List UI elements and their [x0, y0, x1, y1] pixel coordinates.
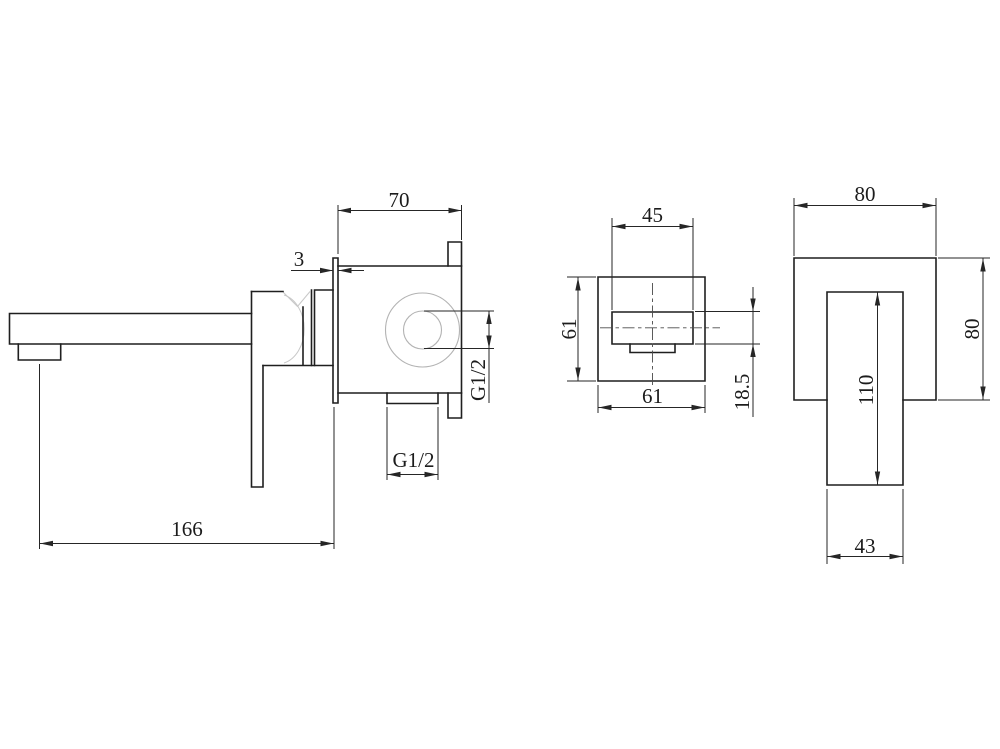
dim-label-slot-height: 18.5 — [730, 374, 754, 411]
dim-label-handle-plate-height: 80 — [960, 319, 984, 340]
blueprint-canvas: 70 3 G1/2 G1/2 — [0, 0, 1000, 749]
dim-lever-width: 43 — [827, 489, 903, 564]
dim-label-body-depth: 70 — [389, 188, 410, 212]
technical-drawing: 70 3 G1/2 G1/2 — [0, 0, 1000, 749]
outlet-thread-circle — [404, 311, 442, 349]
valve-front-view: 45 61 61 18.5 — [557, 203, 760, 417]
handle-lever-outline — [252, 292, 264, 488]
dim-handle-plate-width: 80 — [794, 182, 936, 256]
dim-label-slot-width: 45 — [642, 203, 663, 227]
handle-grip-outline — [252, 292, 334, 366]
dim-label-spout-reach: 166 — [171, 517, 203, 541]
bottom-outlet-port — [387, 393, 438, 404]
valve-body — [338, 266, 462, 393]
dim-label-lever-width: 43 — [855, 534, 876, 558]
dim-label-handle-plate-width: 80 — [855, 182, 876, 206]
handle-front-view: 80 80 110 43 — [794, 182, 990, 564]
wall-plate — [333, 258, 338, 403]
dim-valve-height: 61 — [557, 277, 596, 381]
valve-plate-outline — [598, 277, 705, 381]
cartridge-circles — [386, 293, 460, 367]
dome-arc — [284, 295, 304, 363]
dim-label-lever-length: 110 — [854, 375, 878, 406]
cartridge-outer-circle — [386, 293, 460, 367]
side-view: 70 3 G1/2 G1/2 — [10, 188, 495, 549]
handle-dome-construction — [283, 292, 310, 364]
dim-label-valve-width: 61 — [642, 384, 663, 408]
handle-sleeve — [312, 290, 334, 366]
dim-label-valve-height: 61 — [557, 319, 581, 340]
spout-outline — [10, 314, 252, 345]
dim-valve-width: 61 — [598, 384, 705, 413]
dim-label-plate-thickness: 3 — [294, 247, 305, 271]
dim-plate-thickness: 3 — [291, 247, 364, 271]
dim-label-inlet-thread-bottom: G1/2 — [393, 448, 435, 472]
spout-nozzle — [18, 344, 60, 360]
dim-spout-reach: 166 — [40, 364, 335, 549]
dim-label-outlet-thread-side: G1/2 — [466, 359, 490, 401]
dim-lever-length: 110 — [854, 292, 878, 485]
dim-inlet-thread: G1/2 — [387, 407, 438, 480]
dim-body-depth: 70 — [338, 188, 462, 254]
dim-handle-plate-height: 80 — [938, 258, 990, 400]
